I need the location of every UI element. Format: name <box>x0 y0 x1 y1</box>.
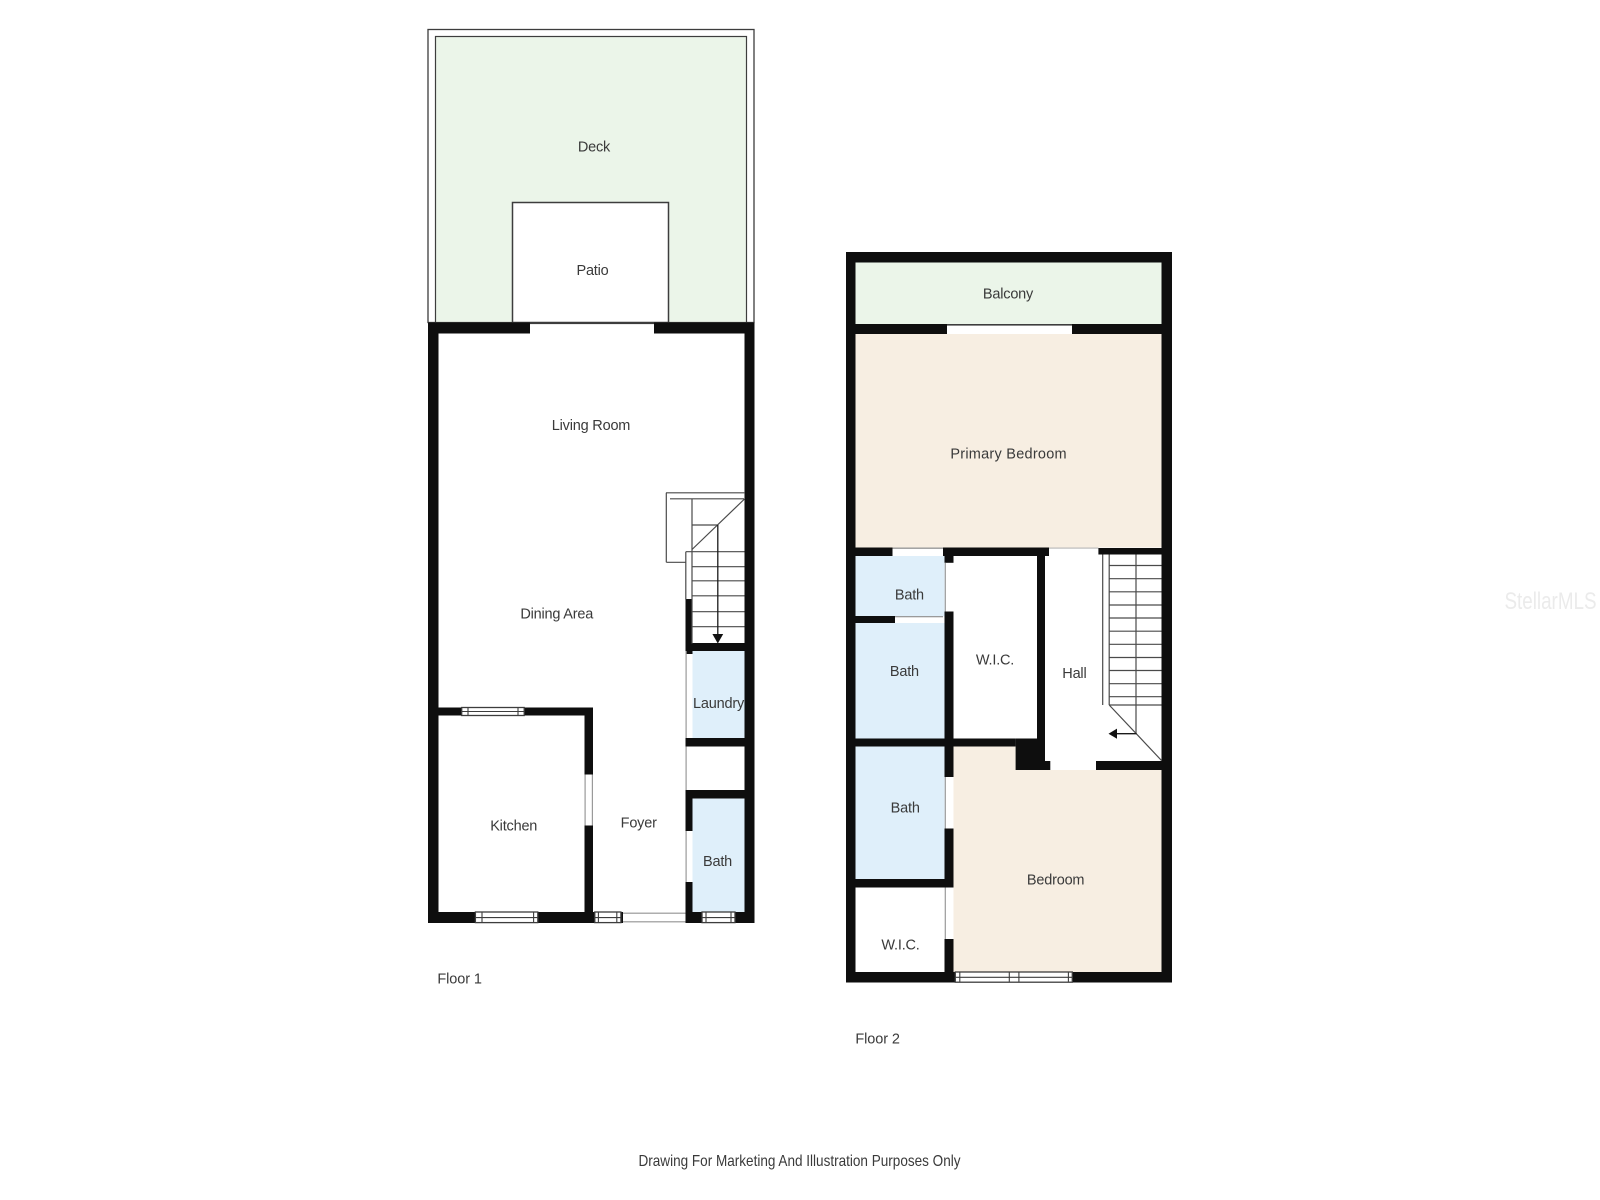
svg-text:StellarMLS: StellarMLS <box>1505 588 1597 615</box>
svg-text:Floor 2: Floor 2 <box>855 1031 899 1047</box>
svg-text:W.I.C.: W.I.C. <box>976 653 1014 669</box>
svg-text:Foyer: Foyer <box>621 816 657 832</box>
svg-text:Dining Area: Dining Area <box>520 607 594 623</box>
svg-text:Bath: Bath <box>703 854 732 870</box>
svg-text:W.I.C.: W.I.C. <box>881 938 919 954</box>
svg-text:Primary Bedroom: Primary Bedroom <box>950 447 1067 463</box>
svg-text:Bath: Bath <box>890 664 919 680</box>
svg-text:Kitchen: Kitchen <box>490 819 537 835</box>
svg-text:Living Room: Living Room <box>552 418 631 434</box>
svg-text:Floor 1: Floor 1 <box>437 972 481 988</box>
svg-text:Balcony: Balcony <box>983 287 1034 303</box>
svg-text:Patio: Patio <box>576 263 608 279</box>
svg-text:Bath: Bath <box>891 801 920 817</box>
svg-text:Bedroom: Bedroom <box>1027 873 1085 889</box>
svg-text:Hall: Hall <box>1062 666 1086 682</box>
svg-text:Laundry: Laundry <box>693 696 745 712</box>
svg-text:Bath: Bath <box>895 588 924 604</box>
svg-text:Deck: Deck <box>578 140 611 156</box>
svg-text:Drawing For Marketing And Illu: Drawing For Marketing And Illustration P… <box>639 1153 961 1170</box>
